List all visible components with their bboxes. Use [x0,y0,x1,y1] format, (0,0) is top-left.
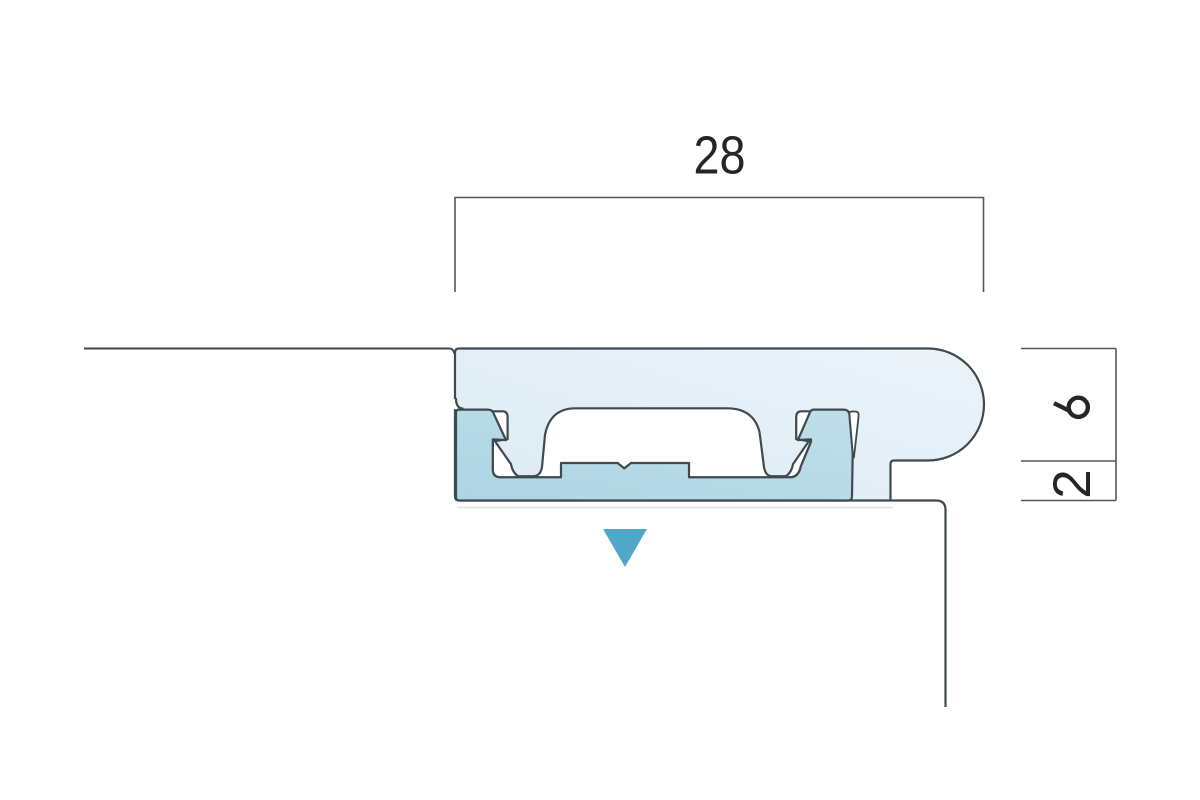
svg-text:2: 2 [1043,469,1102,498]
svg-text:28: 28 [694,126,746,186]
